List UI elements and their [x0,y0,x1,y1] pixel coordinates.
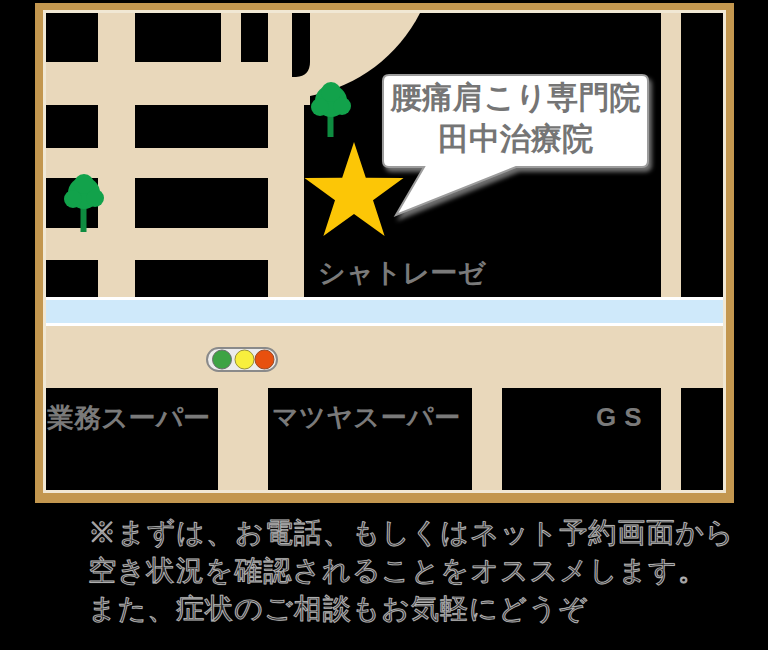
clinic-bubble-text: 腰痛肩こり専門院 田中治療院 [383,77,648,159]
traffic-light-icon [207,348,277,371]
road-bottom-2 [472,388,502,490]
road-bottom-3 [661,388,681,490]
road-horizontal-2 [46,148,268,178]
landmark-label-chatelaise: シャトレーゼ [318,255,486,291]
road-horizontal-3 [46,228,268,260]
clinic-bubble-line2: 田中治療院 [383,118,648,159]
reservation-note-line1: ※まずは、お電話、もしくはネット予約画面から [88,514,735,552]
red-light [255,350,274,369]
road-vertical-2 [221,13,241,62]
landmark-label-matsuya-super: マツヤスーパー [272,400,461,435]
landmark-label-gas-station: GS [596,402,650,433]
river [46,300,723,323]
green-light [213,350,232,369]
reservation-note-line3: また、症状のご相談もお気軽にどうぞ [88,590,735,628]
road-vertical-1 [98,13,135,300]
yellow-light [235,350,254,369]
road-vertical-4 [661,13,681,300]
landmark-label-gyomu-super: 業務スーパー [47,400,210,436]
reservation-note: ※まずは、お電話、もしくはネット予約画面から 空き状況を確認されることをオススメ… [88,514,735,628]
road-main-horizontal [46,325,723,388]
road-curve-inner-corner [292,13,310,77]
reservation-note-line2: 空き状況を確認されることをオススメします。 [88,552,735,590]
road-bottom-1 [218,388,268,490]
clinic-bubble-line1: 腰痛肩こり専門院 [383,77,648,118]
access-map-figure: 腰痛肩こり専門院 田中治療院 シャトレーゼ 業務スーパー マツヤスーパー GS … [0,0,768,650]
